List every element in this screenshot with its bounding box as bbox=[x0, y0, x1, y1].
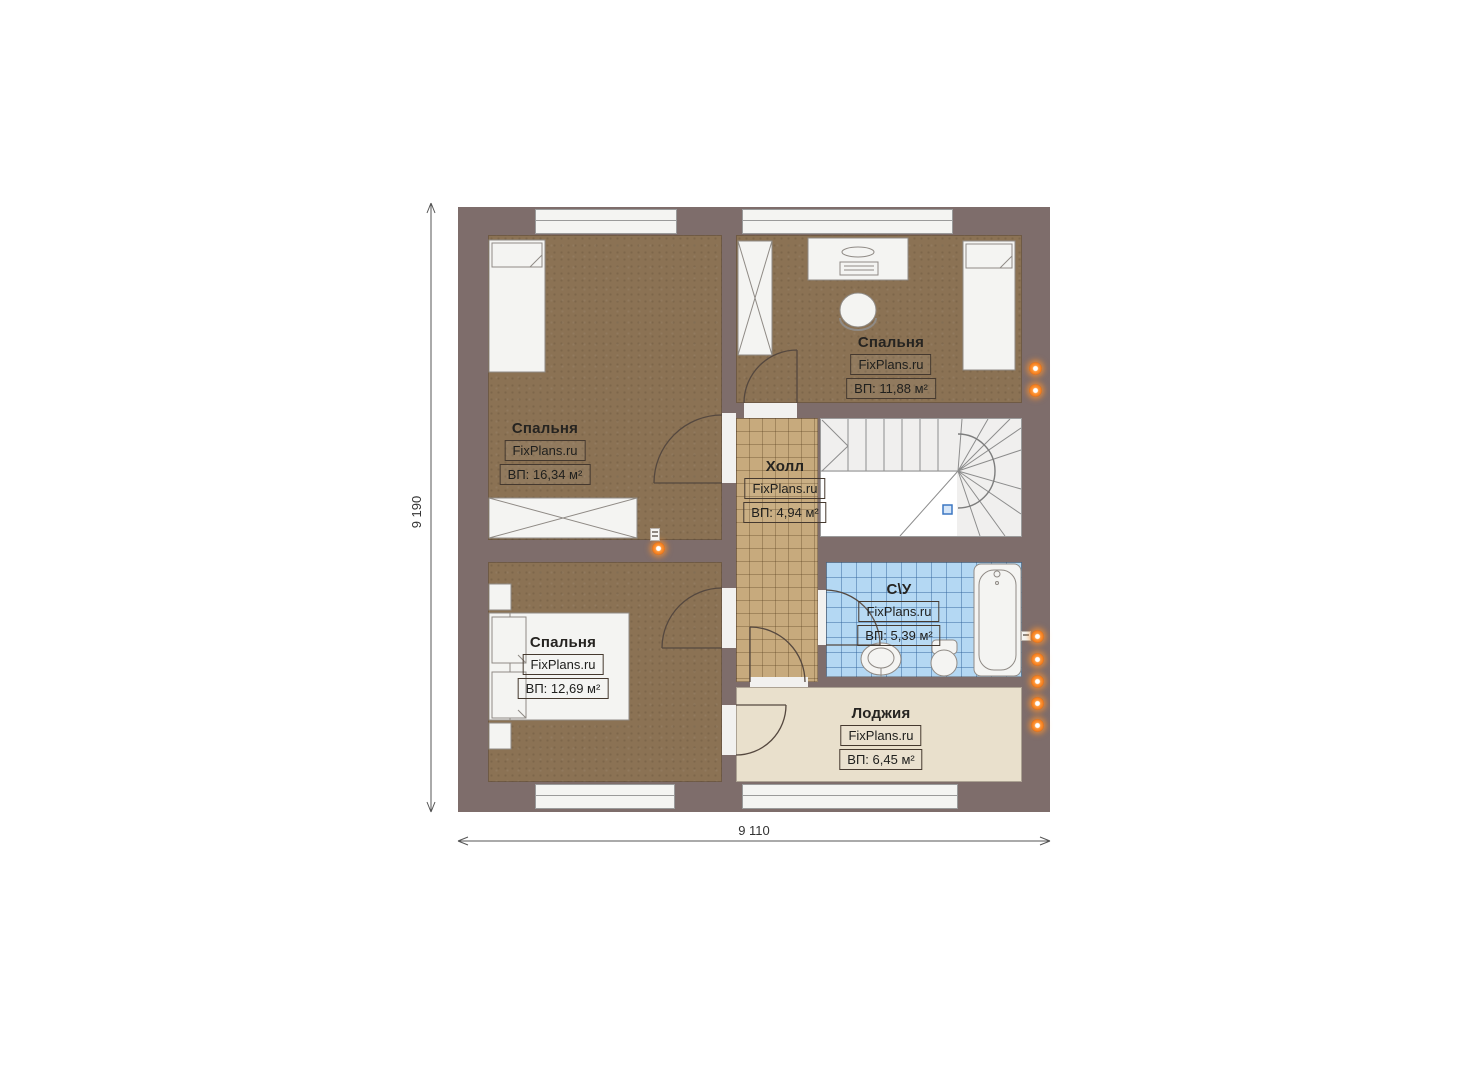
door-opening-bedroom-tr bbox=[744, 403, 797, 418]
room-area: ВП: 12,69 м² bbox=[518, 678, 609, 699]
outlet-dot bbox=[1031, 653, 1044, 666]
door-opening-bedroom-loggia bbox=[722, 705, 736, 755]
room-name: Спальня bbox=[512, 420, 578, 437]
outlet-dot bbox=[1029, 384, 1042, 397]
watermark: FixPlans.ru bbox=[522, 654, 603, 675]
room-name: Холл bbox=[766, 458, 804, 475]
label-bedroom-bottom-left: Спальня FixPlans.ru ВП: 12,69 м² bbox=[518, 634, 609, 699]
dimension-line-height bbox=[427, 203, 435, 812]
room-bedroom-top-left bbox=[488, 235, 722, 540]
label-bathroom: С\У FixPlans.ru ВП: 5,39 м² bbox=[857, 581, 940, 646]
switch-icon bbox=[650, 528, 660, 541]
room-area: ВП: 16,34 м² bbox=[500, 464, 591, 485]
door-opening-hall-loggia bbox=[750, 677, 808, 687]
outlet-dot bbox=[1031, 630, 1044, 643]
label-loggia: Лоджия FixPlans.ru ВП: 6,45 м² bbox=[839, 705, 922, 770]
watermark: FixPlans.ru bbox=[840, 725, 921, 746]
label-bedroom-top-right: Спальня FixPlans.ru ВП: 11,88 м² bbox=[846, 334, 936, 399]
window-top-left bbox=[535, 209, 677, 234]
room-area: ВП: 5,39 м² bbox=[857, 625, 940, 646]
outlet-dot bbox=[1031, 719, 1044, 732]
switch-icon bbox=[1021, 631, 1031, 641]
window-bottom-left bbox=[535, 784, 675, 809]
watermark: FixPlans.ru bbox=[744, 478, 825, 499]
dimension-height-label: 9 190 bbox=[409, 496, 424, 529]
dimension-line-width bbox=[458, 837, 1050, 845]
outlet-dot bbox=[652, 542, 665, 555]
outlet-dot bbox=[1029, 362, 1042, 375]
outlet-dot bbox=[1031, 697, 1044, 710]
room-area: ВП: 11,88 м² bbox=[846, 378, 936, 399]
outlet-dot bbox=[1031, 675, 1044, 688]
watermark: FixPlans.ru bbox=[504, 440, 585, 461]
label-hall: Холл FixPlans.ru ВП: 4,94 м² bbox=[743, 458, 826, 523]
room-name: Спальня bbox=[858, 334, 924, 351]
dimension-width-label: 9 110 bbox=[738, 823, 770, 838]
room-staircase bbox=[820, 418, 1022, 537]
room-area: ВП: 6,45 м² bbox=[839, 749, 922, 770]
door-opening-bedroom-tl bbox=[722, 413, 736, 483]
window-top-right bbox=[742, 209, 953, 234]
watermark: FixPlans.ru bbox=[858, 601, 939, 622]
room-name: Спальня bbox=[530, 634, 596, 651]
door-opening-bathroom bbox=[818, 590, 826, 645]
watermark: FixPlans.ru bbox=[850, 354, 931, 375]
label-bedroom-top-left: Спальня FixPlans.ru ВП: 16,34 м² bbox=[500, 420, 591, 485]
room-name: Лоджия bbox=[852, 705, 911, 722]
window-bottom-right bbox=[742, 784, 958, 809]
room-area: ВП: 4,94 м² bbox=[743, 502, 826, 523]
door-opening-bedroom-bl bbox=[722, 588, 736, 648]
room-name: С\У bbox=[887, 581, 912, 598]
